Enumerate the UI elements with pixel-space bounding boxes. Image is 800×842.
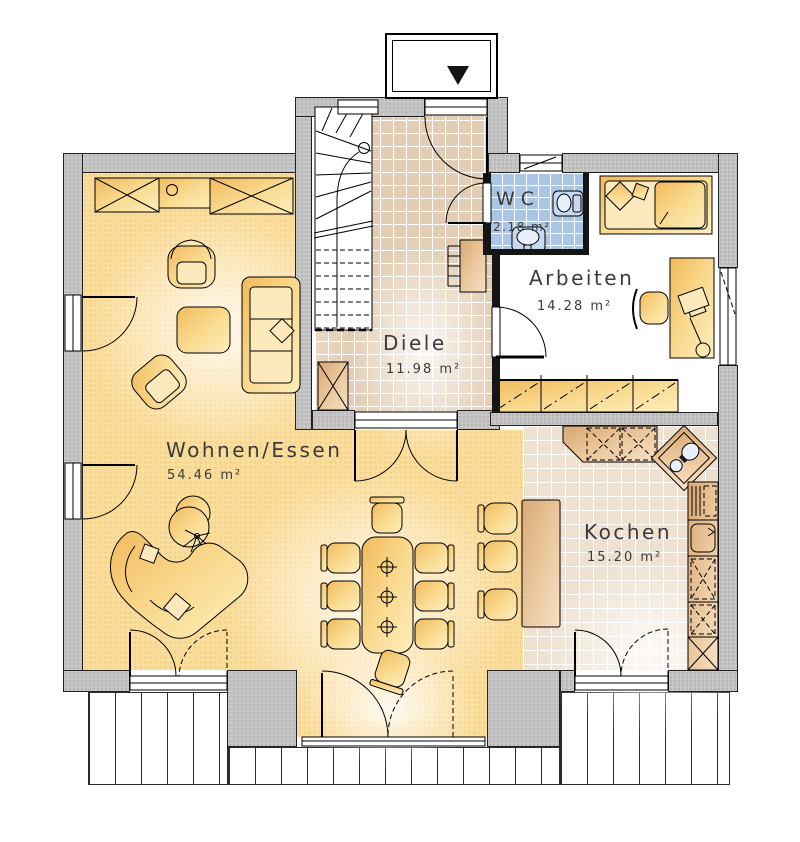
room-area-living: 54.46 m²: [167, 468, 242, 483]
study-door: [496, 307, 546, 357]
wall-top-right-a: [488, 153, 520, 173]
desk: [670, 258, 714, 358]
porch-inner-line: [392, 40, 491, 92]
room-area-wc: 2.18 m²: [493, 220, 551, 234]
terrace-left: [88, 692, 228, 785]
wall-right-a: [718, 153, 738, 268]
terrace-right: [560, 692, 730, 785]
room-area-study: 14.28 m²: [537, 299, 612, 314]
wall-top-right-b: [562, 153, 738, 173]
wall-stair-side: [295, 97, 312, 430]
wall-wc-right: [583, 173, 589, 255]
room-area-hall: 11.98 m²: [386, 362, 461, 377]
window-study: [720, 268, 736, 365]
daybed: [600, 176, 712, 234]
room-label-study: Arbeiten: [529, 266, 634, 290]
room-label-kitchen: Kochen: [584, 520, 672, 544]
wall-bottom-right-b: [668, 670, 738, 692]
floor-plan: Wohnen/Essen 54.46 m² Diele 11.98 m² WC …: [0, 0, 800, 842]
floor-kitchen: [523, 426, 718, 670]
room-label-living: Wohnen/Essen: [166, 438, 342, 462]
wall-left: [63, 153, 83, 692]
wall-study-kitchen: [490, 412, 718, 426]
floor-dining-area: [83, 430, 523, 670]
room-label-hall: Diele: [383, 331, 447, 355]
wall-bottom-left: [63, 670, 130, 692]
room-area-kitchen: 15.20 m²: [587, 550, 662, 565]
wardrobe: [495, 375, 678, 412]
wall-step-block-left: [227, 670, 297, 747]
wall-hall-south-a: [312, 410, 355, 430]
bed-pillow: [632, 183, 649, 200]
wall-step-block-right: [487, 670, 560, 747]
entrance-porch: [385, 33, 498, 99]
office-chair: [633, 289, 668, 329]
floor-bay: [297, 670, 487, 737]
room-label-wc: WC: [496, 188, 540, 210]
window-wc: [520, 155, 562, 171]
bed-pillow: [606, 182, 634, 210]
wall-bottom-right-a: [560, 670, 575, 692]
wall-entry-left: [295, 97, 425, 117]
terrace-center: [228, 747, 560, 785]
wall-right-b: [718, 365, 738, 692]
wall-top-left: [63, 153, 312, 173]
floor-wc: [490, 173, 583, 250]
